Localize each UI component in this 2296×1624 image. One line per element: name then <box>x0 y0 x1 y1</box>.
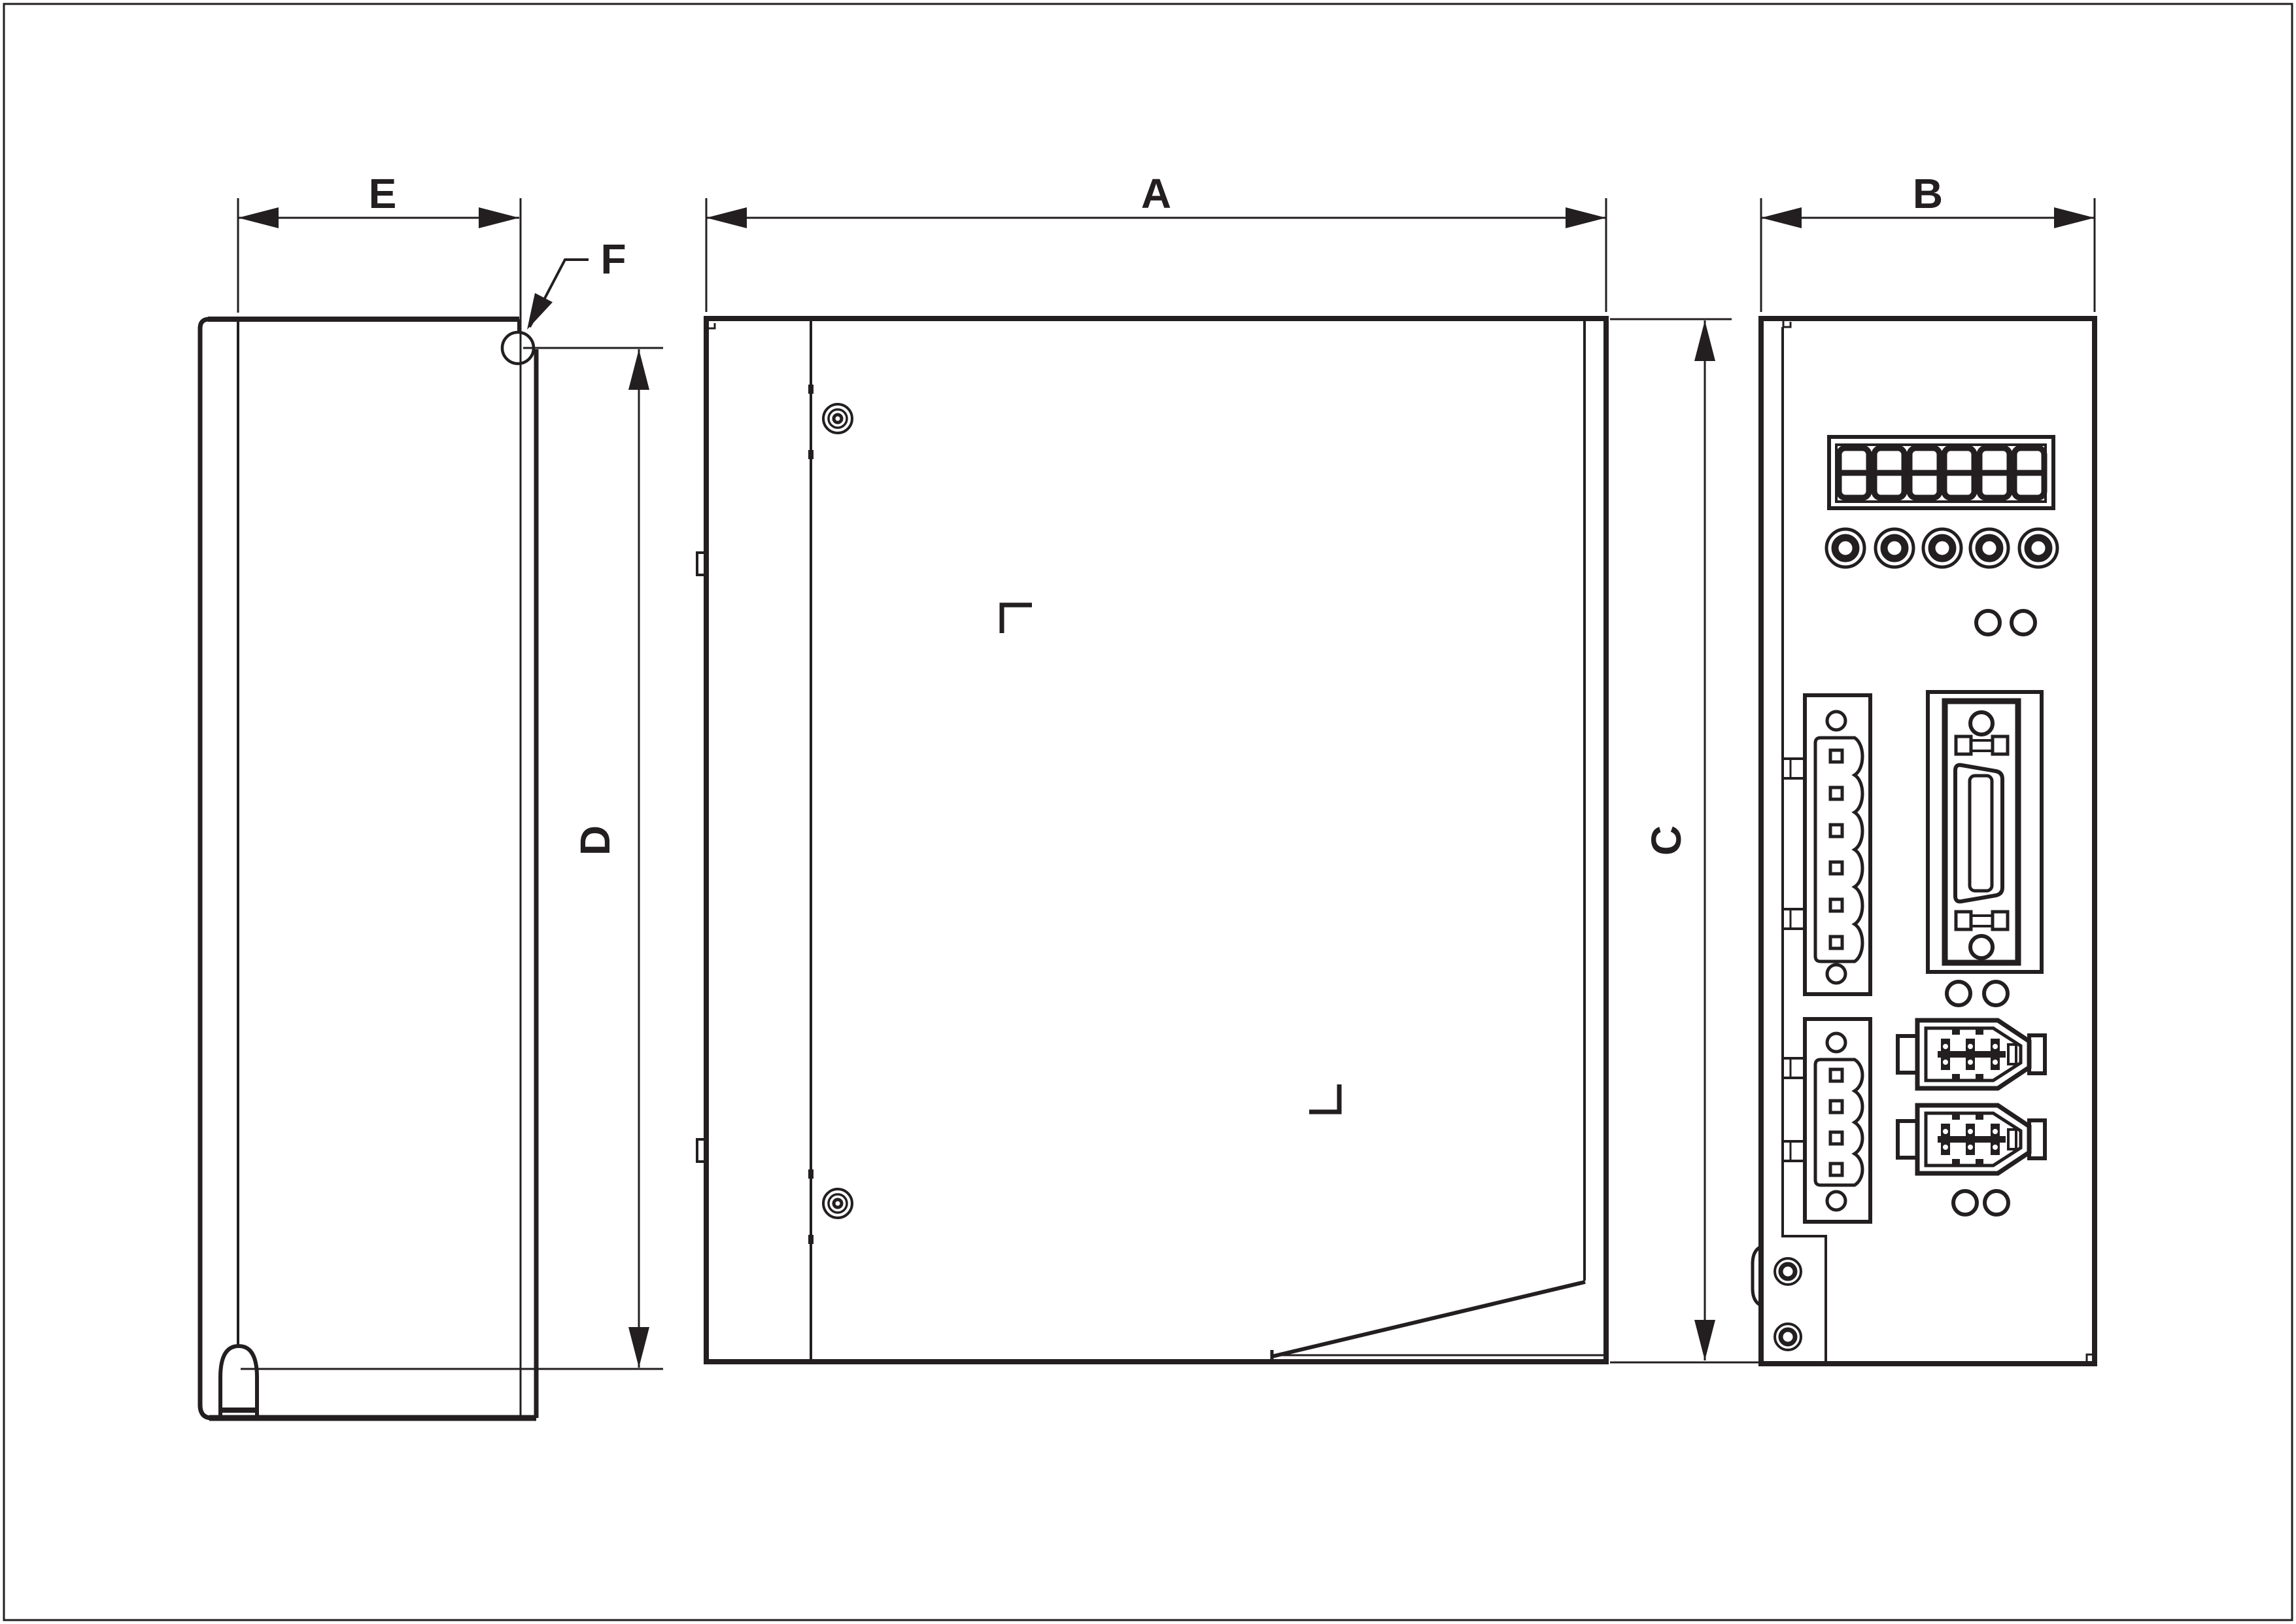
dimension-label-A: A <box>1141 170 1171 217</box>
dimension-label-D: D <box>572 825 619 855</box>
dimension-B: B <box>1761 170 2095 312</box>
dimension-C: C <box>1610 319 1773 1362</box>
push-buttons <box>1826 529 2057 567</box>
digit-1 <box>1839 448 1869 498</box>
dimension-label-B: B <box>1913 170 1943 217</box>
bottom-led-2 <box>1985 1191 2008 1215</box>
dimension-label-E: E <box>369 170 397 217</box>
digit-6 <box>2014 448 2044 498</box>
digit-5 <box>1979 448 2010 498</box>
button-2 <box>1876 529 1913 567</box>
encoder-port-1 <box>1898 1020 2045 1088</box>
aux-connector <box>1783 1019 1870 1222</box>
io-connector <box>1928 692 2042 972</box>
digit-4 <box>1944 448 1974 498</box>
io-led-2 <box>1984 982 2008 1005</box>
digit-3 <box>1910 448 1940 498</box>
outline-drawing: E A B C D F <box>0 0 2296 1624</box>
case-screw-upper <box>823 404 852 433</box>
corner-mark-bottom <box>1309 1084 1339 1112</box>
io-led-1 <box>1947 982 1970 1005</box>
button-4 <box>1970 529 2008 567</box>
dimension-label-F: F <box>600 235 626 283</box>
left-side-view <box>200 198 536 1418</box>
corner-mark-top <box>1002 605 1032 633</box>
bottom-led-1 <box>1953 1191 1977 1215</box>
digit-2 <box>1874 448 1904 498</box>
fixing-screw-lower <box>1775 1324 1801 1350</box>
dimension-A: A <box>706 170 1606 312</box>
seven-segment-display <box>1829 437 2053 508</box>
fixing-screw-upper <box>1775 1258 1801 1285</box>
drawing-sheet: E A B C D F <box>0 0 2296 1624</box>
sheet-border <box>4 4 2292 1620</box>
case-screw-lower <box>823 1189 852 1218</box>
bottom-wedge-diagonal <box>1272 1282 1585 1356</box>
encoder-port-2 <box>1898 1105 2045 1173</box>
button-1 <box>1826 529 1864 567</box>
mounting-foot-arch <box>220 1346 257 1418</box>
button-3 <box>1923 529 1961 567</box>
connector-panel-view <box>1753 319 2095 1364</box>
front-view <box>697 319 1606 1362</box>
button-5 <box>2019 529 2057 567</box>
status-led-1 <box>1976 611 2000 634</box>
status-led-2 <box>2012 611 2035 634</box>
dimension-D: D <box>241 348 663 1369</box>
dimension-E: E <box>238 170 519 313</box>
callout-F: F <box>527 235 626 330</box>
callout-arrowhead <box>527 293 553 330</box>
power-connector <box>1783 695 1870 994</box>
dimension-label-C: C <box>1643 825 1690 855</box>
